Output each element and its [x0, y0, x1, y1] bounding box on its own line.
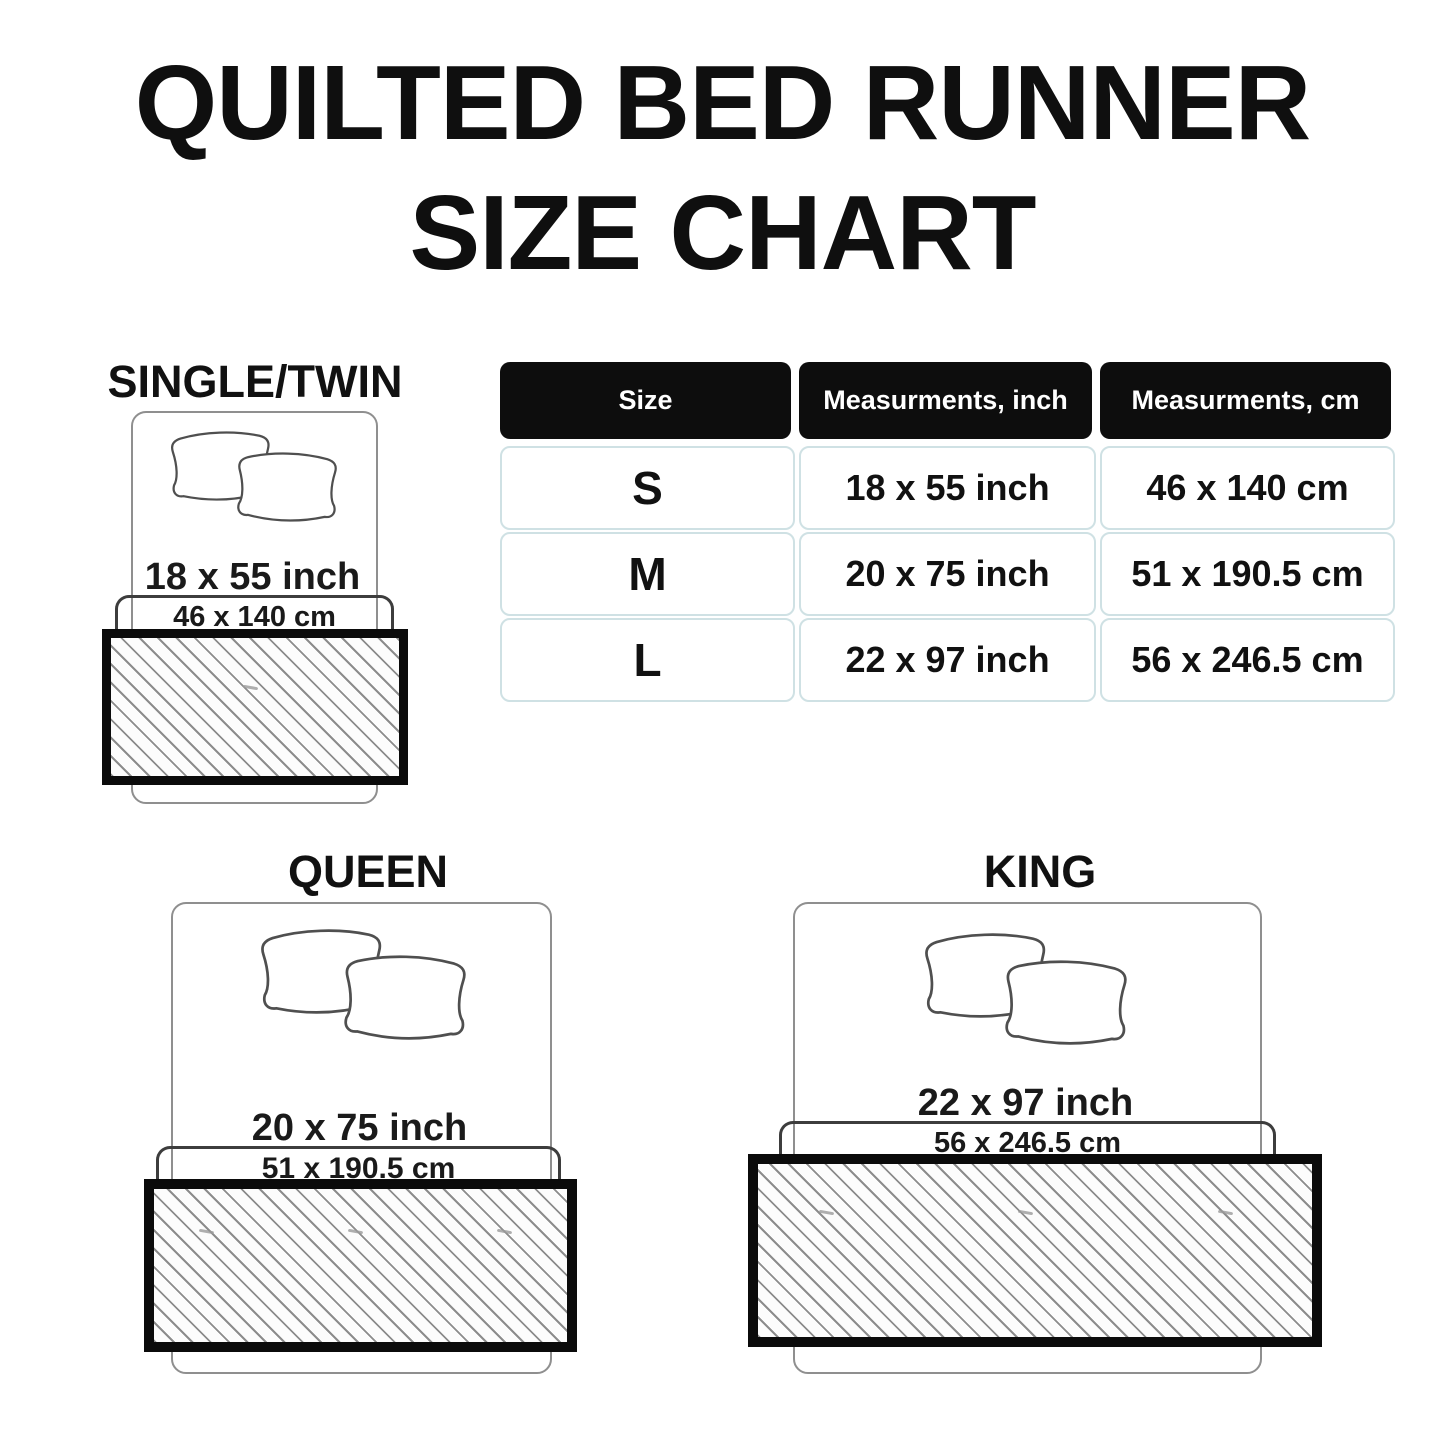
bed-runner-single — [102, 629, 408, 785]
table-cell-inch-m: 20 x 75 inch — [799, 532, 1096, 616]
table-cell-size-s: S — [500, 446, 795, 530]
pillow-icon — [338, 948, 472, 1046]
bed-runner-king — [748, 1154, 1322, 1347]
table-header-inch: Measurments, inch — [799, 362, 1092, 439]
stitch-mark — [348, 1229, 363, 1235]
bed-runner-queen — [144, 1179, 577, 1352]
table-cell-cm-m: 51 x 190.5 cm — [1100, 532, 1395, 616]
dimension-inch-label-queen: 20 x 75 inch — [171, 1107, 548, 1150]
stitch-mark — [243, 685, 258, 691]
dimension-inch-label-king: 22 x 97 inch — [793, 1082, 1258, 1125]
table-cell-size-m: M — [500, 532, 795, 616]
title-line-1: QUILTED BED RUNNER — [0, 38, 1445, 168]
pillow-icon — [232, 447, 342, 528]
table-header-size: Size — [500, 362, 791, 439]
diagram-label-king: KING — [890, 846, 1190, 898]
table-cell-cm-s: 46 x 140 cm — [1100, 446, 1395, 530]
stitch-mark — [497, 1229, 512, 1235]
pillow-icon — [338, 948, 472, 1046]
size-chart-infographic: QUILTED BED RUNNER SIZE CHART SINGLE/TWI… — [0, 0, 1445, 1445]
pillow-icon — [999, 953, 1133, 1051]
table-header-cm: Measurments, cm — [1100, 362, 1391, 439]
table-cell-inch-s: 18 x 55 inch — [799, 446, 1096, 530]
stitch-mark — [819, 1209, 834, 1215]
diagram-label-queen: QUEEN — [218, 846, 518, 898]
pillow-icon — [999, 953, 1133, 1051]
stitch-mark — [1218, 1209, 1233, 1215]
pillow-icon — [232, 447, 342, 528]
table-cell-cm-l: 56 x 246.5 cm — [1100, 618, 1395, 702]
table-cell-inch-l: 22 x 97 inch — [799, 618, 1096, 702]
page-title: QUILTED BED RUNNER SIZE CHART — [0, 38, 1445, 299]
title-line-2: SIZE CHART — [0, 168, 1445, 298]
diagram-label-single-twin: SINGLE/TWIN — [95, 356, 415, 408]
stitch-mark — [199, 1229, 214, 1235]
stitch-mark — [1018, 1209, 1033, 1215]
table-cell-size-l: L — [500, 618, 795, 702]
dimension-inch-label-single: 18 x 55 inch — [131, 556, 374, 599]
